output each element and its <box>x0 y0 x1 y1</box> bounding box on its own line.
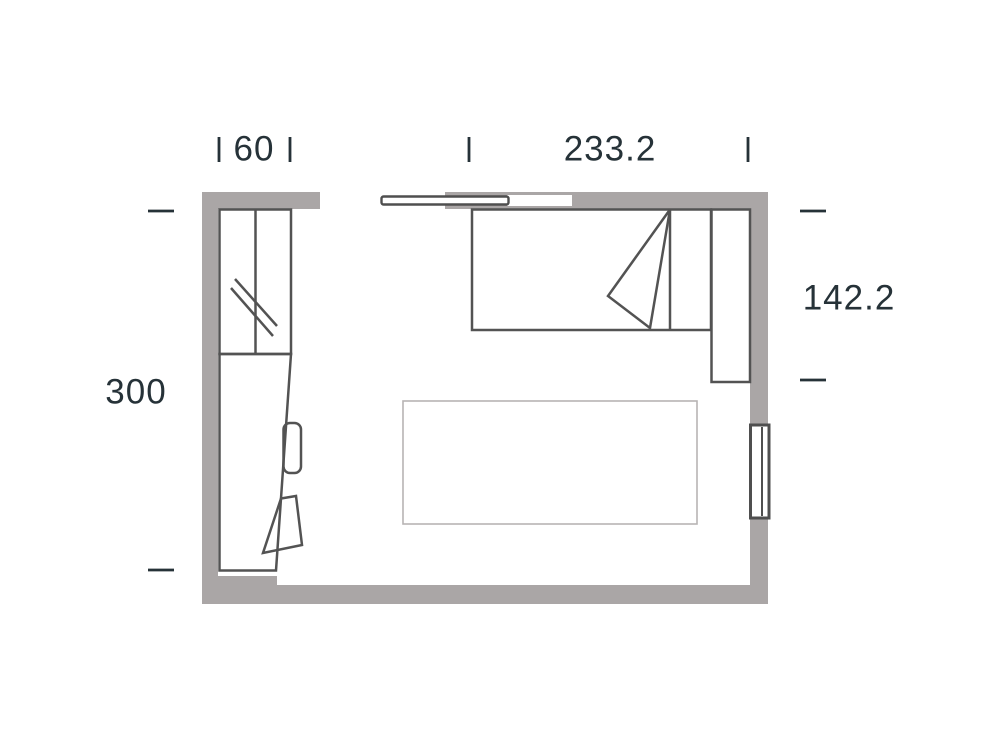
wall-top-left-segment <box>202 192 320 209</box>
wall-bottom <box>202 585 768 604</box>
desk <box>220 354 292 571</box>
wall-right <box>750 192 768 604</box>
bed <box>472 210 711 331</box>
dim-60-label: 60 <box>234 130 275 169</box>
dimension-right-height: 142.2 <box>800 211 895 380</box>
dimension-wardrobe-width: 60 <box>219 130 290 169</box>
wall-left <box>202 192 218 604</box>
mirror-stroke-2 <box>231 288 273 336</box>
door-pocket-notch <box>507 195 572 206</box>
bed-frame <box>472 210 711 331</box>
wardrobe-with-mirror <box>220 210 292 355</box>
floor-plan-diagram: 60 233.2 300 142.2 <box>0 0 1000 750</box>
dim-142-label: 142.2 <box>803 279 896 318</box>
dimension-bed-wall-width: 233.2 <box>469 130 748 169</box>
dimension-left-height: 300 <box>105 211 174 570</box>
sliding-door-panel <box>382 197 509 205</box>
chair-seat <box>263 496 302 553</box>
bedside-cabinet <box>712 210 751 383</box>
floor-plan-page: 60 233.2 300 142.2 <box>0 0 1000 750</box>
window <box>751 425 770 518</box>
wall-ledge-bottom-left <box>218 576 277 586</box>
dim-233-label: 233.2 <box>564 130 657 169</box>
window-frame <box>751 425 770 518</box>
rug <box>403 401 697 524</box>
blanket-fold <box>608 210 670 329</box>
dim-300-label: 300 <box>105 373 166 412</box>
